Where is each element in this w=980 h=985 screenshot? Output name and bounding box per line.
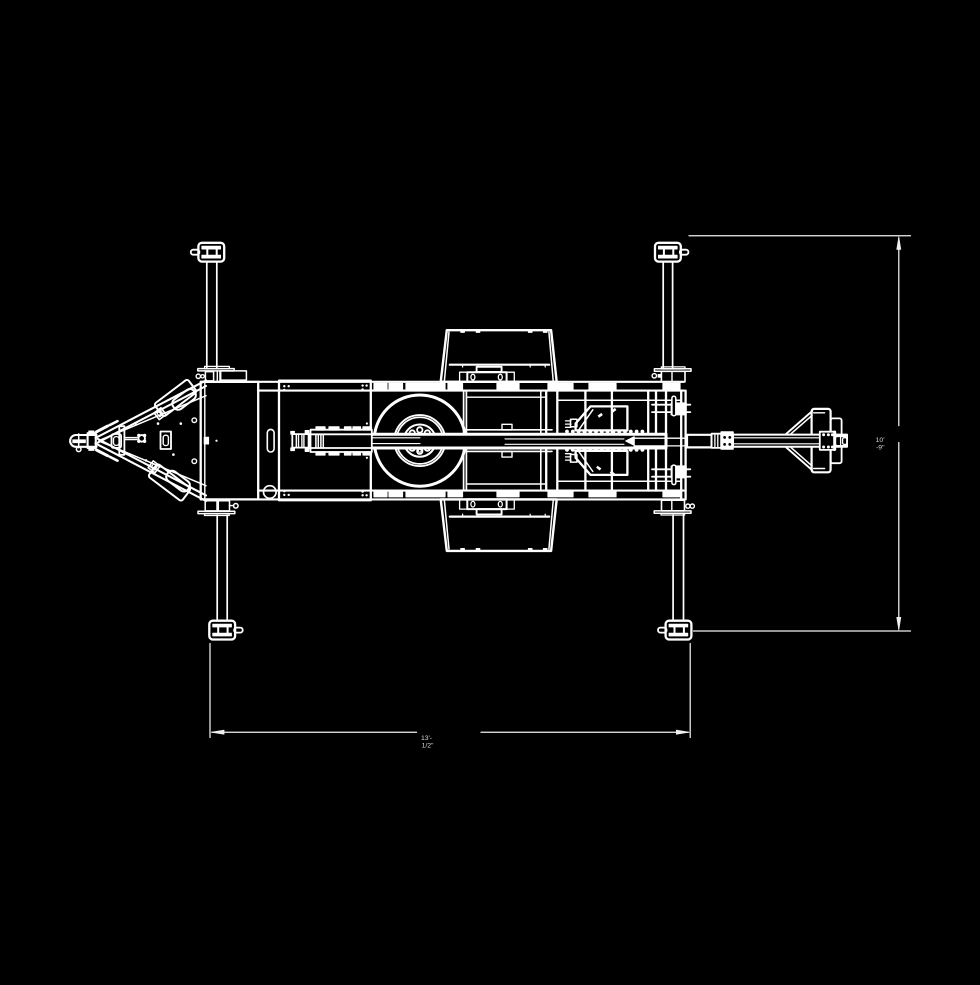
svg-text:10': 10' bbox=[876, 437, 885, 444]
svg-text:13'-: 13'- bbox=[421, 735, 432, 742]
svg-text:1/2": 1/2" bbox=[422, 743, 434, 750]
svg-text:-9": -9" bbox=[876, 444, 885, 451]
